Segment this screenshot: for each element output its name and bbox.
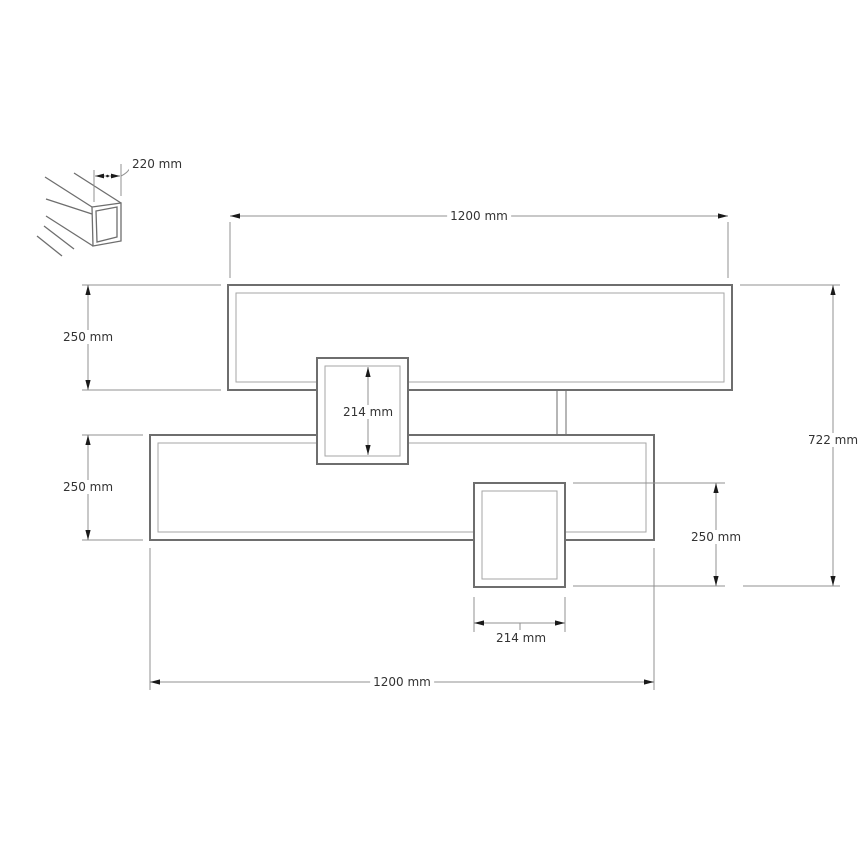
dimension-label-upper-box-height: 214 mm — [340, 405, 396, 419]
profile-width-dimension — [94, 164, 131, 202]
dimension-label-lower-box-height: 250 mm — [688, 530, 744, 544]
dimension-label-top-width: 1200 mm — [447, 209, 511, 223]
dimension-label-lower-shelf-height: 250 mm — [60, 480, 116, 494]
front-view — [150, 285, 732, 587]
profile-isometric-view — [37, 164, 131, 256]
dimension-label-lower-box-width: 214 mm — [493, 631, 549, 645]
drawing-linework — [0, 0, 868, 868]
technical-drawing-canvas: 220 mm 1200 mm 250 mm 250 mm 722 mm 214 … — [0, 0, 868, 868]
dimension-label-bottom-width: 1200 mm — [370, 675, 434, 689]
dimension-label-upper-shelf-height: 250 mm — [60, 330, 116, 344]
dimension-label-profile-width: 220 mm — [129, 157, 185, 171]
lower-box-width-dimension — [474, 597, 565, 632]
dimension-label-overall-height: 722 mm — [805, 433, 861, 447]
upper-shelf-frame — [228, 285, 732, 390]
top-width-dimension — [230, 213, 728, 278]
support-tube — [557, 390, 566, 435]
lower-box-module — [474, 483, 565, 587]
bottom-width-dimension — [150, 548, 654, 690]
